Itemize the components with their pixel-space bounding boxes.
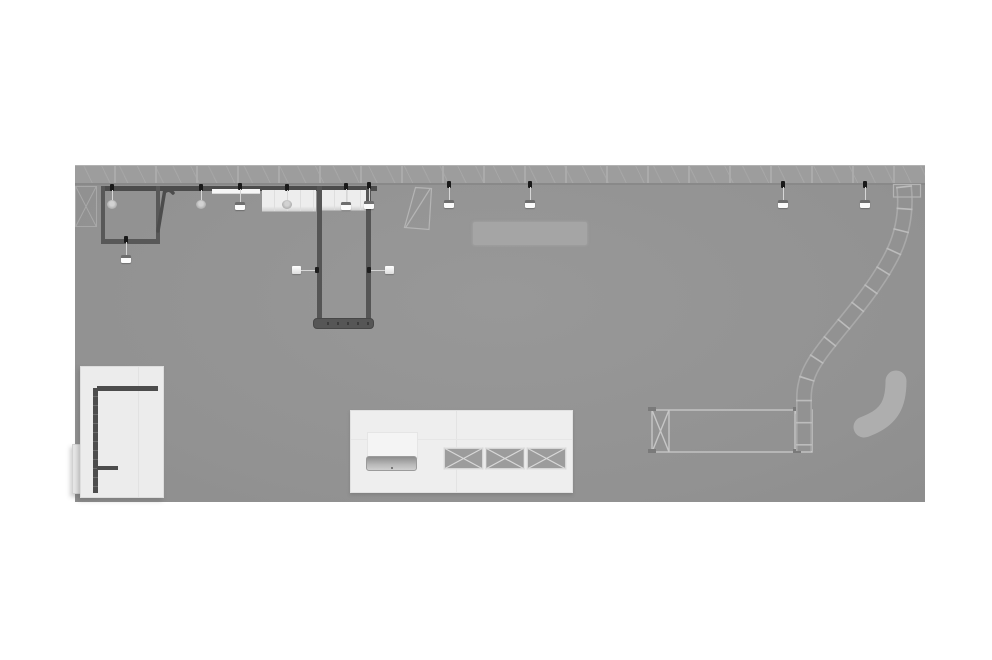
runway-truss-plates <box>648 407 801 453</box>
crates <box>444 448 566 469</box>
crate <box>486 448 525 469</box>
wall-anchor-dot <box>315 267 319 273</box>
light-fixture <box>778 200 788 208</box>
light-stem <box>112 190 113 200</box>
light-stem <box>346 189 347 202</box>
light-stem <box>201 190 202 200</box>
round-light-fixture <box>196 200 206 209</box>
light-stem <box>449 187 450 200</box>
runway-truss <box>652 410 812 452</box>
vector-layer <box>0 0 992 660</box>
door-leaf <box>158 190 173 231</box>
sconce-fixture <box>292 266 301 274</box>
left-truss-segment <box>76 187 97 227</box>
light-fixture <box>860 200 870 208</box>
light-stem <box>783 187 784 200</box>
light-fixture <box>235 202 245 210</box>
light-stem <box>126 242 127 255</box>
light-fixture <box>444 200 454 208</box>
light-stem <box>287 190 288 200</box>
gate-panel <box>405 188 432 230</box>
light-fixture <box>121 255 131 263</box>
wall-sconce <box>292 266 320 276</box>
light-fixture <box>364 201 374 209</box>
light-stem <box>865 187 866 200</box>
wall-sconce <box>366 266 394 276</box>
crate <box>527 448 566 469</box>
round-light-fixture <box>107 200 117 209</box>
sconce-stem <box>301 270 315 271</box>
crate <box>444 448 483 469</box>
curved-bench <box>864 381 896 427</box>
sconce-fixture <box>385 266 394 274</box>
round-light-fixture <box>282 200 292 209</box>
light-fixture <box>525 200 535 208</box>
floor-plan-canvas <box>0 0 992 660</box>
light-stem <box>530 187 531 200</box>
light-stem <box>369 188 370 201</box>
light-fixture <box>341 202 351 210</box>
curved-truss-wall <box>804 185 921 452</box>
light-stem <box>240 189 241 202</box>
sconce-stem <box>371 270 385 271</box>
